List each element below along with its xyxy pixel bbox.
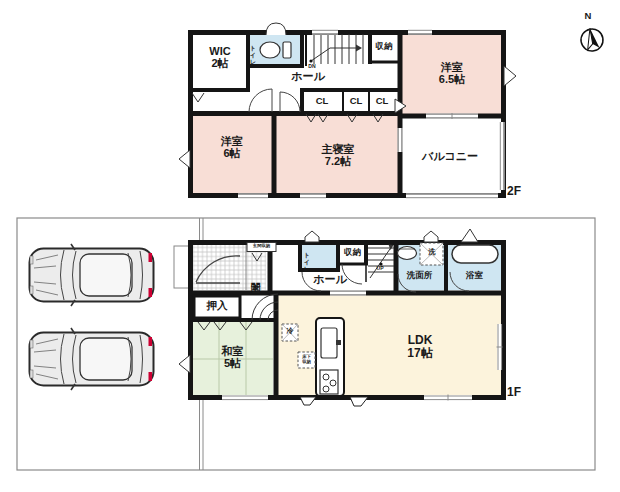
room-label-ldk: LDK17帖	[350, 334, 490, 361]
floor1-tag: 1F	[507, 386, 537, 399]
casement-window-icon	[504, 66, 516, 86]
room-label-oshiire: 押入	[194, 300, 240, 312]
car-top-view	[30, 328, 154, 390]
kitchen-sink-icon	[321, 328, 337, 358]
toilet-icon	[260, 42, 291, 58]
room-label-hall-1f: ホール	[298, 273, 362, 285]
sliding-door	[330, 291, 366, 296]
porch-step	[174, 246, 190, 288]
refrigerator-label: 冷	[282, 327, 298, 335]
room-label-bedroom-65: 洋室6.5帖	[402, 61, 502, 86]
room-label-hall-2f: ホール	[276, 70, 340, 82]
closet-label: CL	[371, 96, 393, 107]
room-label-storage-1f: 収納	[338, 248, 367, 258]
room-label-bathroom: 浴室	[446, 271, 503, 281]
compass-icon	[579, 26, 605, 52]
stairs-2f	[309, 34, 363, 64]
room-label-toilet-1f: トイレ	[303, 246, 310, 270]
room-label-washroom: 洗面所	[394, 271, 445, 281]
entrance-storage-label: 玄関収納	[250, 243, 272, 248]
room-label-balcony: バルコニー	[400, 150, 500, 162]
faucet-icon	[336, 340, 341, 345]
room-label-japanese-room: 和室5帖	[192, 345, 273, 370]
casement-window-icon	[179, 150, 190, 168]
closet-label: CL	[304, 96, 340, 107]
room-label-entrance: 玄関	[250, 257, 261, 293]
kitchen-counter	[316, 318, 344, 396]
floor-plan: WIC2帖 トイレ ホール DN 収納 CL CL CL 洋室6.5帖 洋室6帖…	[0, 0, 620, 492]
room-label-storage-2f: 収納	[370, 42, 398, 52]
room-label-toilet-2f: トイレ	[249, 37, 256, 65]
underfloor-storage-label: 床下収納	[300, 354, 312, 364]
room-label-bedroom-6: 洋室6帖	[192, 135, 272, 160]
floor2-tag: 2F	[507, 185, 537, 198]
room-label-wic: WIC2帖	[190, 45, 250, 70]
bathtub-icon	[452, 245, 498, 263]
stairs-1f	[368, 245, 394, 279]
car-top-view	[30, 244, 154, 306]
stairs-up-label: UP	[372, 266, 387, 272]
compass-north-label: N	[580, 11, 596, 22]
stairs-dn-label: DN	[305, 64, 319, 70]
washbasin-icon	[398, 247, 417, 260]
washer-label: 洗	[424, 248, 440, 256]
room-label-master-bedroom: 主寝室7.2帖	[276, 143, 400, 168]
closet-label: CL	[345, 96, 367, 107]
stove-icon	[320, 370, 338, 394]
